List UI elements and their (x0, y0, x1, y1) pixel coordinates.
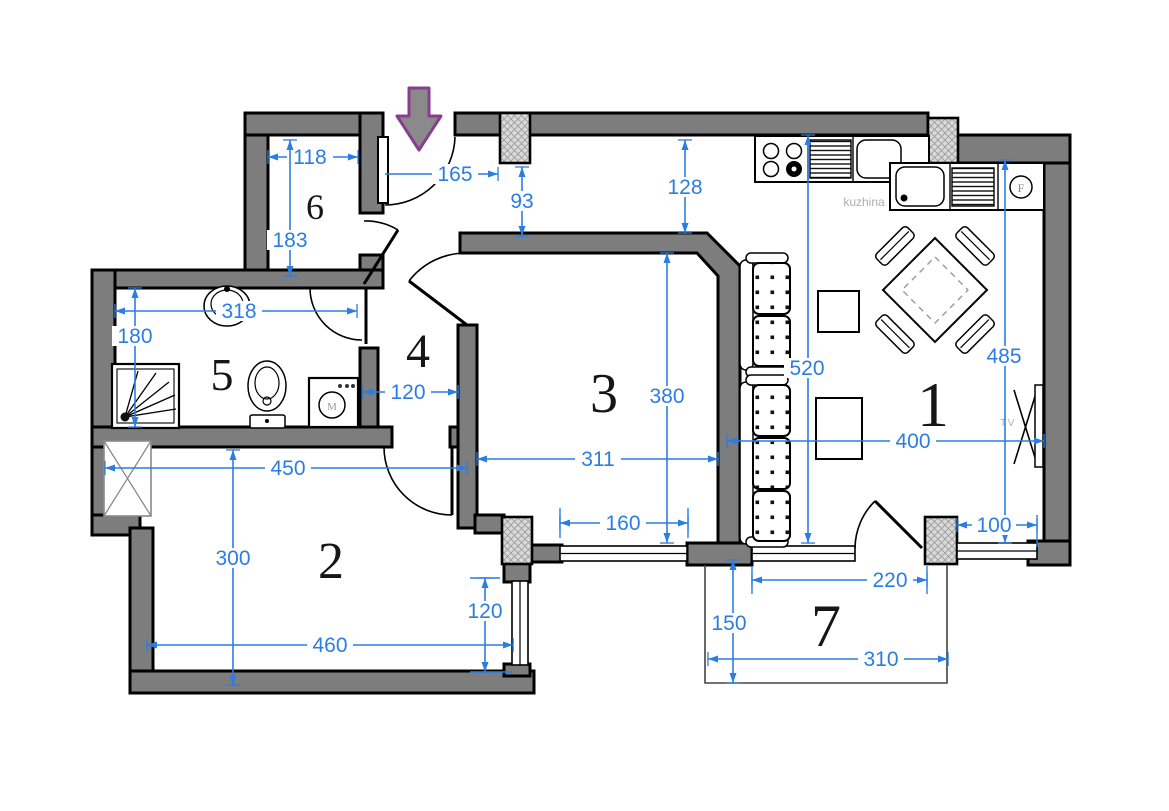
dim-room3-width: 311 (477, 448, 718, 471)
dim-room3-window: 160 (560, 508, 688, 538)
svg-text:100: 100 (976, 514, 1011, 537)
column-top-entrance (500, 113, 530, 163)
svg-text:318: 318 (221, 300, 256, 323)
balcony-door (855, 501, 922, 548)
column-room2-room3 (502, 517, 532, 564)
wall-room2-bottom (130, 671, 534, 693)
wall-room3-left-foot (475, 515, 504, 533)
shower-icon (112, 364, 179, 428)
wall-stub-room3-window-left (530, 545, 562, 562)
room3-door (409, 253, 467, 325)
dining-chair (874, 313, 916, 355)
room-number-1: 1 (917, 369, 949, 440)
coffee-table-small (818, 291, 859, 332)
coffee-table-large (816, 398, 862, 459)
sofa-cushion (753, 438, 790, 489)
dim-room2-window: 120 (462, 578, 512, 672)
svg-text:128: 128 (667, 176, 702, 199)
column-top-right (928, 118, 958, 163)
svg-text:310: 310 (863, 648, 898, 671)
window-living-bottom (752, 546, 855, 561)
tv: TV (1000, 385, 1043, 467)
floor-plan-page: F kuzhina TV (0, 0, 1169, 811)
dim-balcony-door-span: 220 (752, 566, 927, 594)
floor-plan: F kuzhina TV (0, 0, 1169, 811)
kitchen-label: kuzhina (843, 195, 885, 209)
room-number-3: 3 (590, 363, 618, 425)
wall-room2-left (130, 528, 153, 693)
bathroom-door (310, 288, 366, 344)
svg-text:93: 93 (510, 190, 533, 213)
svg-text:118: 118 (293, 146, 326, 169)
wall-bath-right (360, 348, 378, 429)
svg-text:160: 160 (605, 512, 640, 535)
dim-room2-width-bottom: 460 (147, 634, 513, 657)
window-room2-right (512, 581, 528, 665)
dining-chair (874, 225, 916, 267)
kitchen-counter-right-row: F (890, 163, 1044, 210)
wardrobe-x-icon (104, 441, 151, 516)
svg-text:311: 311 (581, 448, 614, 471)
dim-balcony-depth: 150 (706, 560, 752, 683)
dim-room3-height: 380 (644, 253, 690, 543)
svg-text:183: 183 (272, 229, 307, 252)
fridge-icon: F (1010, 176, 1032, 198)
column-bottom-right (925, 517, 957, 564)
sofa-cushion (753, 263, 790, 314)
room-number-7: 7 (811, 593, 841, 659)
room-number-4: 4 (406, 325, 430, 378)
window-room3-bottom (560, 546, 687, 561)
svg-text:300: 300 (215, 547, 250, 570)
tv-label: TV (1000, 418, 1016, 429)
kitchen-sink2-icon (896, 167, 944, 206)
svg-text:520: 520 (789, 357, 824, 380)
svg-text:450: 450 (270, 457, 305, 480)
wall-room6-left (245, 113, 268, 288)
sofa-cushion (753, 491, 790, 541)
dining-table (874, 225, 996, 355)
wall-t-block (687, 543, 752, 565)
counter-grate2-icon (952, 168, 994, 206)
wall-right (1044, 163, 1070, 543)
dim-entrance-width: 165 (385, 163, 498, 186)
doors (310, 137, 922, 548)
svg-text:380: 380 (649, 385, 684, 408)
sofa (740, 253, 790, 547)
dim-room2-height: 300 (210, 450, 256, 685)
counter-grate-icon (810, 140, 851, 178)
toilet-icon (248, 361, 286, 428)
dim-room2-width-top: 450 (105, 457, 467, 480)
svg-text:120: 120 (390, 381, 425, 404)
svg-text:120: 120 (467, 600, 502, 623)
window-living-bottom-right (957, 543, 1037, 559)
dim-corridor-gap: 93 (505, 167, 539, 236)
wall-bath-top (92, 270, 383, 288)
wall-room2-window-cap-top (504, 563, 530, 582)
washer-label: M (327, 401, 337, 413)
washing-machine-icon: M (309, 378, 358, 427)
svg-text:150: 150 (711, 612, 746, 635)
dining-chair (954, 225, 996, 267)
room-number-6: 6 (306, 187, 324, 227)
dim-room6-width: 118 (268, 146, 358, 169)
dim-living-height-right: 485 (981, 160, 1027, 543)
dim-kitchen-gap: 128 (662, 140, 708, 233)
svg-text:485: 485 (986, 345, 1021, 368)
sofa-cushion (753, 385, 790, 436)
room-number-5: 5 (211, 349, 234, 400)
svg-text:220: 220 (872, 569, 907, 592)
wall-room3-left (458, 325, 477, 528)
fridge-label: F (1018, 181, 1025, 195)
svg-text:180: 180 (117, 325, 152, 348)
room2-door (384, 447, 452, 515)
svg-text:165: 165 (437, 163, 472, 186)
svg-text:460: 460 (312, 634, 347, 657)
dim-window-right: 100 (957, 514, 1037, 547)
room-number-2: 2 (318, 533, 344, 590)
entrance-arrow-icon (397, 88, 441, 150)
